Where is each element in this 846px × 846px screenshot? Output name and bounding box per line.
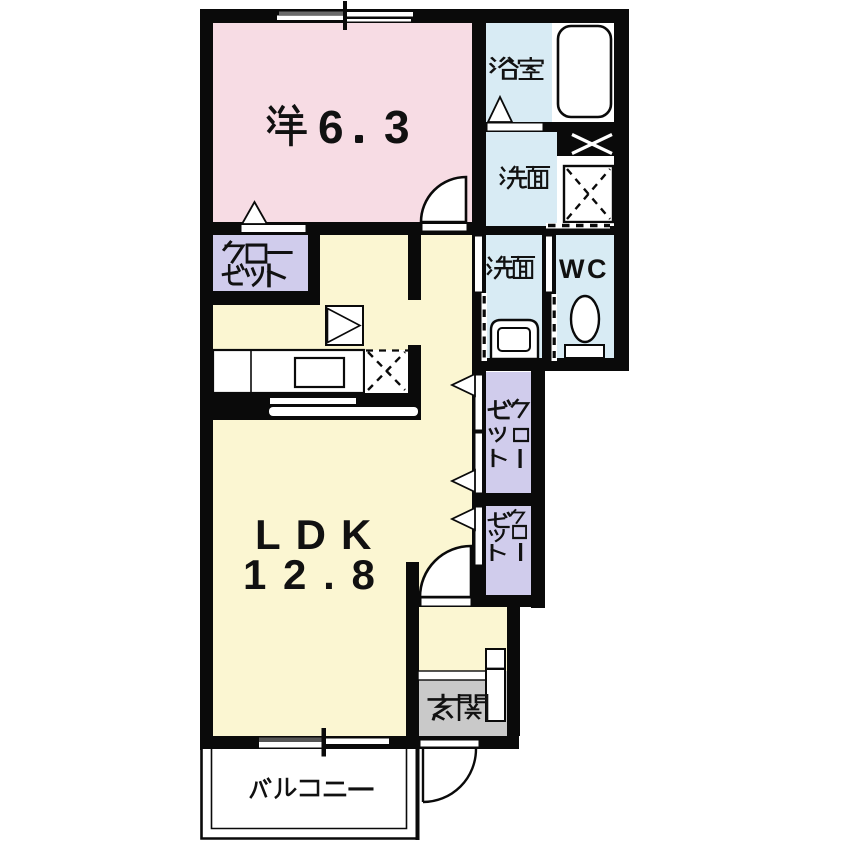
svg-text:3: 3 [384,101,410,153]
svg-text:12.8: 12.8 [243,551,392,598]
svg-text:WC: WC [559,254,609,284]
svg-text:6: 6 [318,101,344,153]
